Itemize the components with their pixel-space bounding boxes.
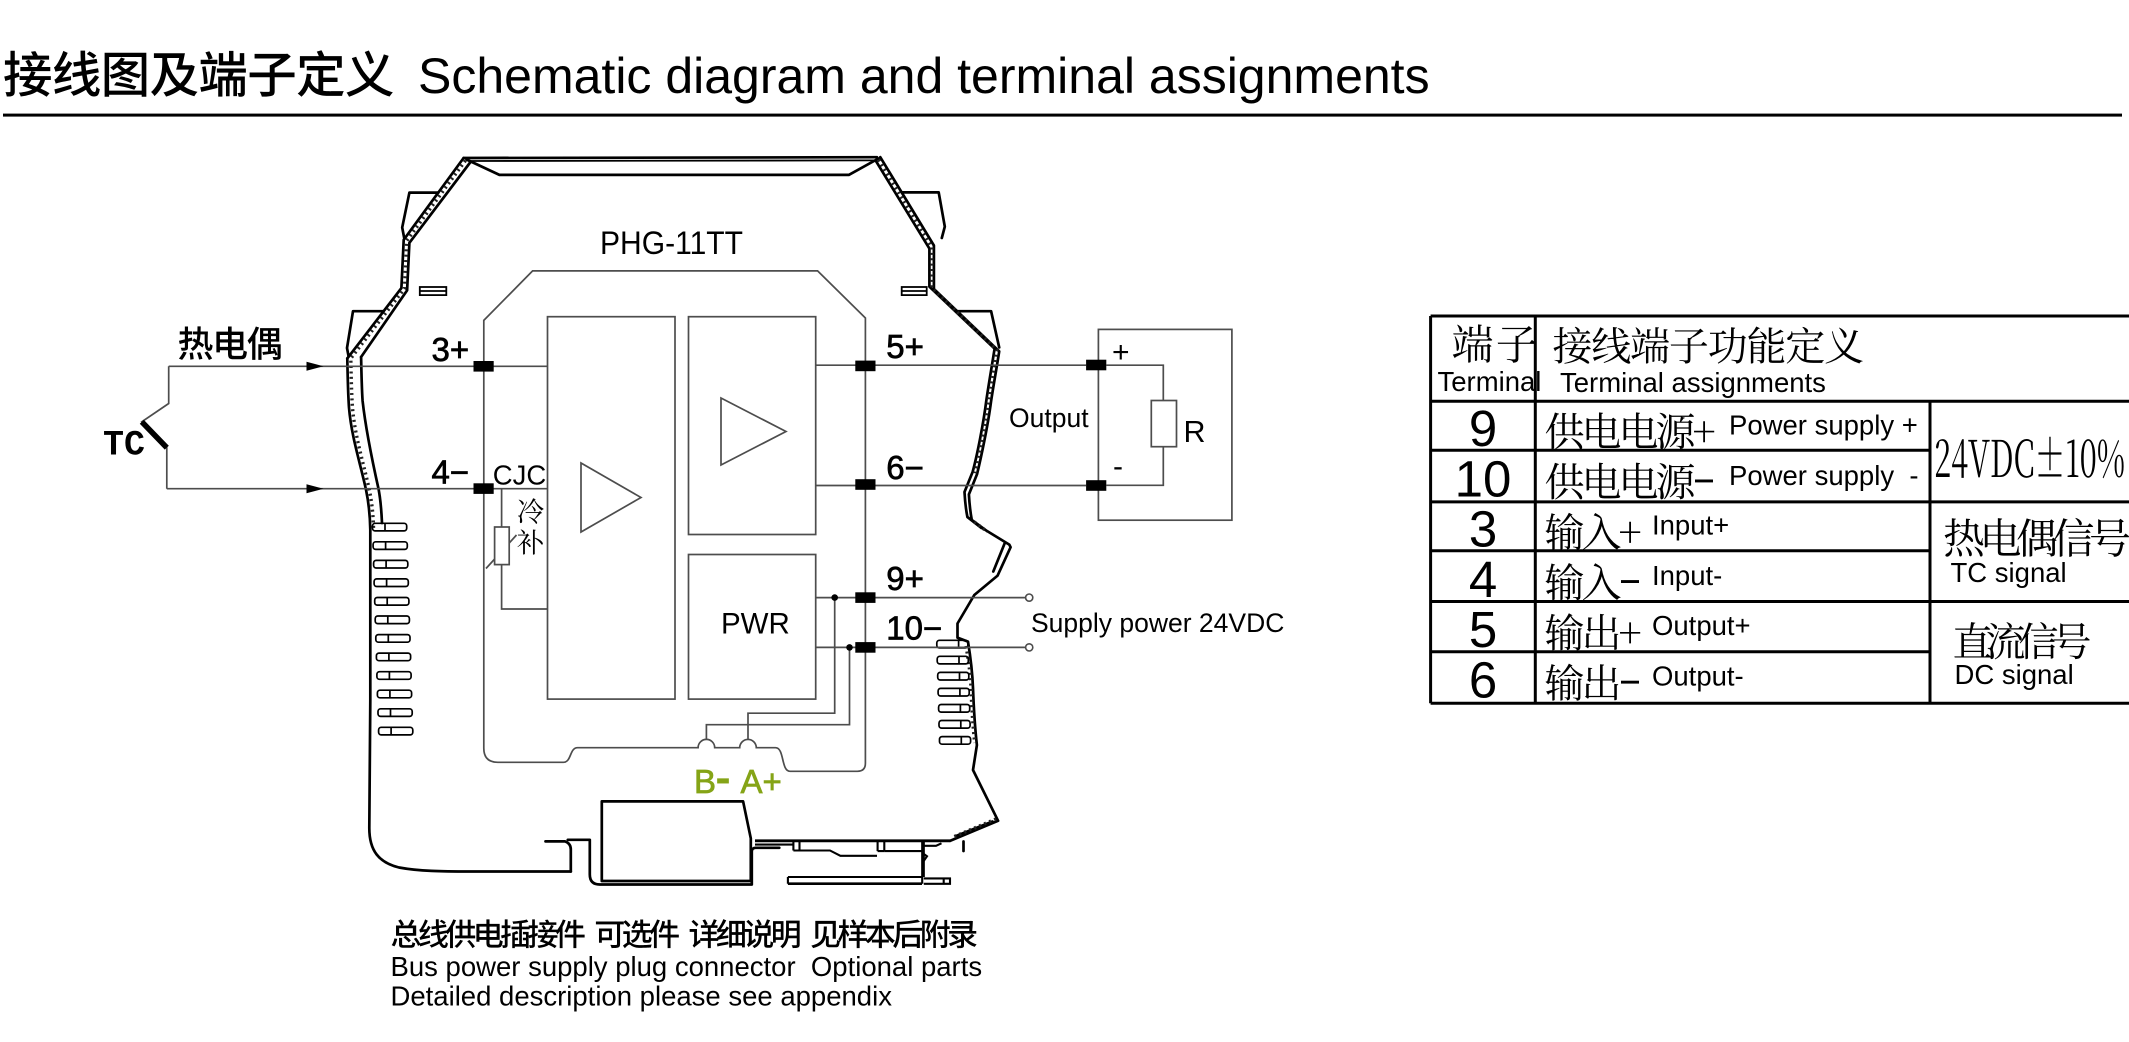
svg-text:10: 10 (1455, 450, 1512, 507)
svg-text:4−: 4− (432, 454, 470, 491)
svg-text:Output+: Output+ (1652, 610, 1751, 641)
svg-text:Schematic diagram and terminal: Schematic diagram and terminal assignmen… (418, 48, 1430, 104)
svg-text:9+: 9+ (886, 560, 924, 597)
svg-text:5: 5 (1469, 601, 1497, 658)
svg-text:10−: 10− (886, 610, 942, 647)
svg-text:Bus power supply plug connecto: Bus power supply plug connector Optional… (391, 951, 983, 982)
svg-text:5+: 5+ (886, 328, 924, 365)
svg-text:Power supply +: Power supply + (1729, 410, 1918, 441)
svg-text:PHG-11TT: PHG-11TT (600, 225, 743, 261)
svg-text:TC signal: TC signal (1951, 557, 2067, 588)
svg-text:PWR: PWR (721, 608, 790, 641)
svg-text:Power supply -: Power supply - (1729, 460, 1919, 491)
svg-text:Output-: Output- (1652, 661, 1744, 692)
svg-text:B: B (694, 763, 716, 800)
svg-text:+: + (1112, 336, 1130, 369)
svg-text:6: 6 (1469, 652, 1497, 709)
svg-text:R: R (1184, 415, 1206, 449)
svg-text:Supply power 24VDC: Supply power 24VDC (1031, 608, 1284, 638)
svg-text:CJC: CJC (493, 459, 546, 490)
svg-text:Output: Output (1009, 403, 1089, 433)
svg-text:3: 3 (1469, 501, 1497, 558)
svg-text:A+: A+ (741, 763, 782, 800)
svg-text:Detailed description please se: Detailed description please see appendix (391, 981, 893, 1012)
svg-text:3+: 3+ (432, 331, 470, 368)
svg-text:-: - (1113, 450, 1123, 483)
svg-text:Terminal assignments: Terminal assignments (1560, 367, 1826, 398)
svg-text:6−: 6− (886, 449, 924, 486)
svg-text:Input+: Input+ (1652, 510, 1729, 541)
svg-text:9: 9 (1469, 400, 1497, 457)
svg-text:Input-: Input- (1652, 560, 1722, 591)
svg-text:DC signal: DC signal (1955, 659, 2074, 690)
svg-text:Terminal: Terminal (1438, 366, 1542, 397)
svg-text:TC: TC (103, 426, 145, 466)
svg-text:4: 4 (1469, 551, 1497, 608)
